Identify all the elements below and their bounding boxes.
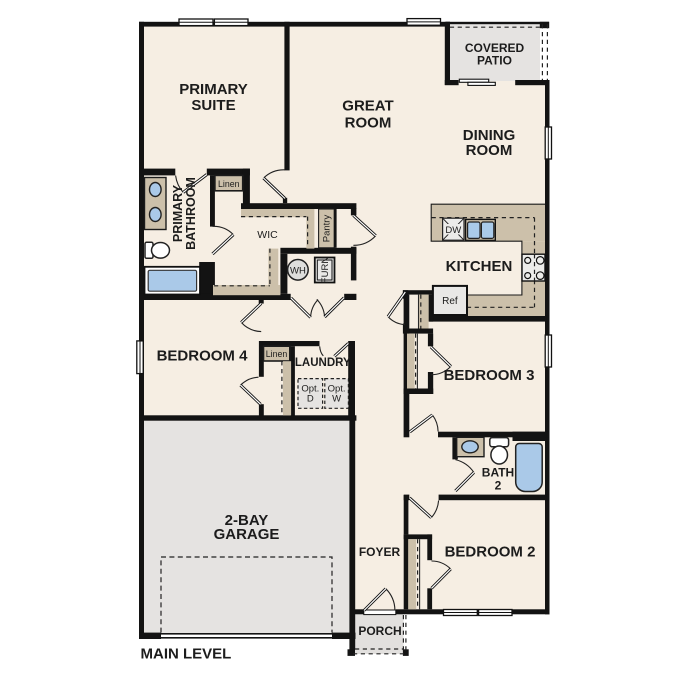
svg-text:BATHROOM: BATHROOM [184, 177, 198, 250]
svg-text:PATIO: PATIO [477, 54, 512, 68]
svg-text:WH: WH [290, 265, 306, 276]
svg-text:2: 2 [495, 479, 502, 493]
svg-text:BATH: BATH [482, 466, 514, 480]
svg-text:MAIN LEVEL: MAIN LEVEL [141, 646, 232, 663]
svg-text:GREAT: GREAT [342, 98, 393, 115]
svg-text:FOYER: FOYER [359, 545, 401, 559]
svg-text:Linen: Linen [266, 349, 288, 359]
svg-text:D: D [307, 394, 314, 405]
svg-text:WIC: WIC [257, 229, 278, 241]
svg-text:SUITE: SUITE [191, 97, 235, 114]
svg-text:DW: DW [445, 225, 461, 236]
svg-text:GARAGE: GARAGE [214, 526, 280, 543]
svg-text:KITCHEN: KITCHEN [446, 258, 513, 275]
svg-text:BEDROOM 4: BEDROOM 4 [157, 348, 249, 365]
svg-text:LAUNDRY: LAUNDRY [295, 357, 351, 369]
svg-text:FURN: FURN [320, 257, 331, 284]
svg-text:ROOM: ROOM [345, 115, 392, 132]
svg-text:BEDROOM 2: BEDROOM 2 [445, 544, 536, 561]
svg-text:PORCH: PORCH [358, 624, 401, 638]
svg-text:W: W [332, 394, 341, 405]
svg-text:Pantry: Pantry [322, 215, 333, 243]
svg-text:Ref: Ref [442, 296, 458, 307]
svg-text:Linen: Linen [218, 179, 240, 189]
svg-text:ROOM: ROOM [466, 142, 513, 159]
svg-text:PRIMARY: PRIMARY [179, 81, 248, 98]
svg-text:PRIMARY: PRIMARY [171, 184, 185, 242]
svg-text:BEDROOM 3: BEDROOM 3 [444, 367, 535, 384]
